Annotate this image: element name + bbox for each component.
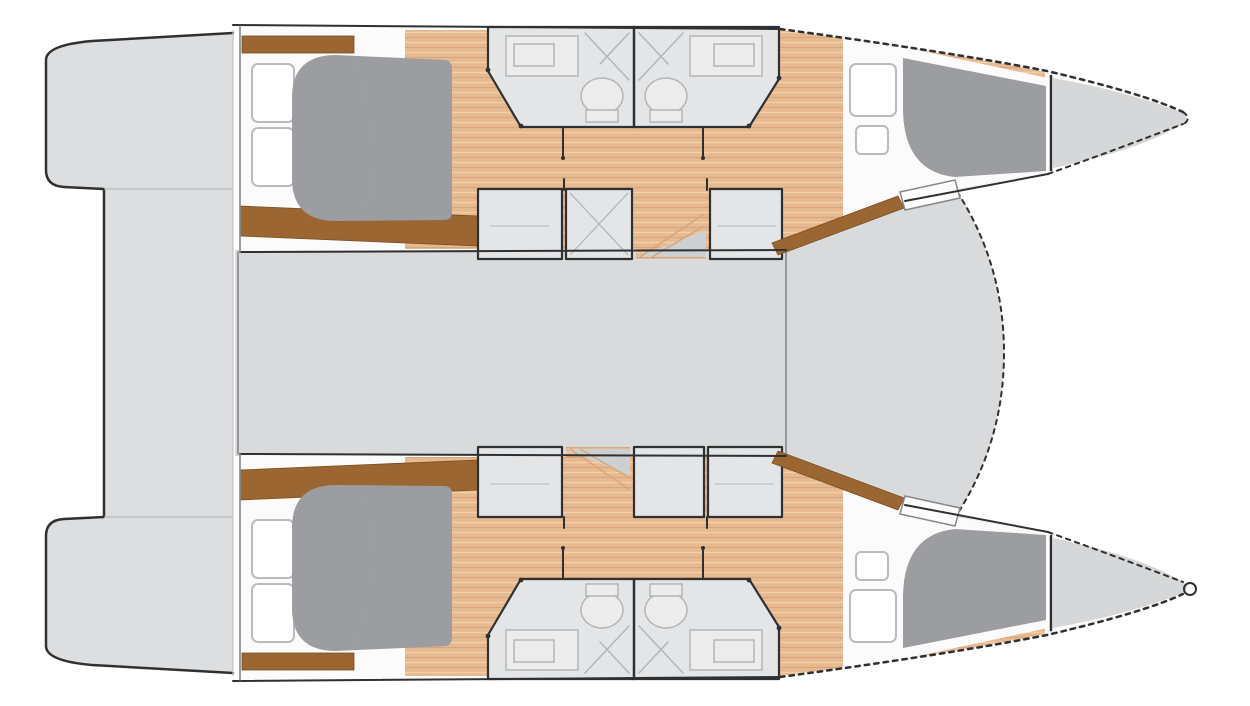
port-storage-row — [478, 179, 782, 259]
wall-joint-dot — [519, 124, 524, 129]
toilet — [581, 592, 623, 628]
toilet-cistern — [586, 584, 618, 596]
vanity-sink — [506, 630, 578, 670]
port-entry-steps — [636, 189, 706, 259]
saloon-floor — [235, 250, 788, 456]
toilet — [645, 592, 687, 628]
port-aft-berth-head-board — [242, 36, 354, 53]
starboard-hull — [233, 447, 1196, 682]
port-hull — [233, 24, 1189, 259]
wall-joint-dot — [747, 124, 752, 129]
starboard-companionway-box — [634, 447, 704, 517]
starboard-wardrobe-aft — [478, 447, 562, 517]
port-forward-window-2 — [856, 126, 888, 154]
door-hinge-dot — [701, 156, 705, 160]
starboard-aft-berth-head-board — [242, 653, 354, 670]
saloon-area — [235, 250, 788, 456]
wall-joint-dot — [486, 68, 491, 73]
port-wardrobe-forward — [710, 189, 782, 259]
aft-platform — [46, 30, 233, 676]
vanity-sink — [690, 630, 762, 670]
port-forward-window-1 — [850, 64, 896, 116]
starboard-entry-steps — [566, 447, 630, 517]
starboard-aft-window-1 — [252, 584, 294, 642]
wall-joint-dot — [519, 578, 524, 583]
door-hinge-dot — [561, 546, 565, 550]
starboard-aft-cabin — [240, 460, 478, 670]
vanity-sink — [690, 36, 762, 76]
wall-joint-dot — [747, 578, 752, 583]
port-aft-cabin — [240, 36, 478, 246]
starboard-forward-window-1 — [850, 590, 896, 642]
toilet — [645, 78, 687, 114]
aft-platform-body — [46, 33, 233, 673]
wall-joint-dot — [777, 626, 782, 631]
toilet — [581, 78, 623, 114]
wall-joint-dot — [486, 634, 491, 639]
vanity-sink — [506, 36, 578, 76]
starboard-wardrobe-forward — [708, 447, 782, 517]
toilet-cistern — [650, 584, 682, 596]
wall-joint-dot — [777, 76, 782, 81]
port-aft-window-2 — [252, 128, 294, 186]
catamaran-floor-plan — [0, 0, 1250, 706]
toilet-cistern — [650, 110, 682, 122]
port-aft-window-1 — [252, 64, 294, 122]
port-wardrobe-aft — [478, 189, 562, 259]
starboard-forward-window-2 — [856, 552, 888, 580]
starboard-aft-window-2 — [252, 520, 294, 578]
door-hinge-dot — [701, 546, 705, 550]
door-hinge-dot — [561, 156, 565, 160]
starboard-storage-row — [478, 447, 782, 528]
toilet-cistern — [586, 110, 618, 122]
starboard-aft-cabin-bed — [292, 485, 452, 651]
port-aft-cabin-bed — [292, 55, 452, 221]
